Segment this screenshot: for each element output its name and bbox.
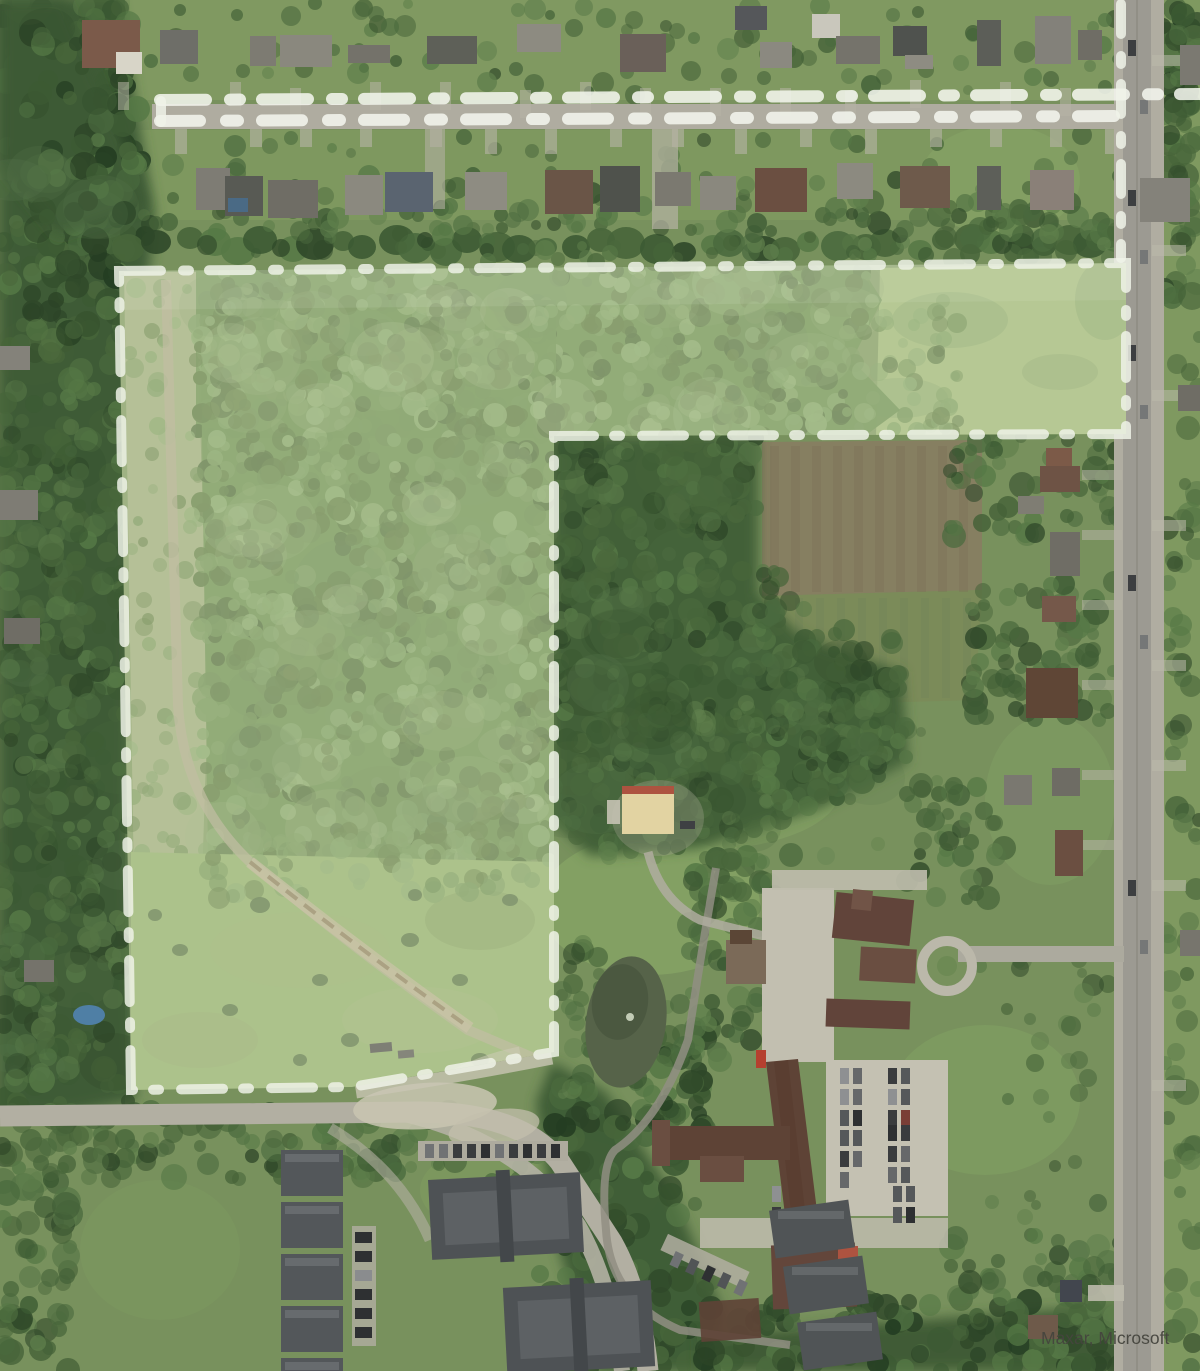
svg-text:Maxar, Microsoft: Maxar, Microsoft <box>1041 1328 1169 1348</box>
